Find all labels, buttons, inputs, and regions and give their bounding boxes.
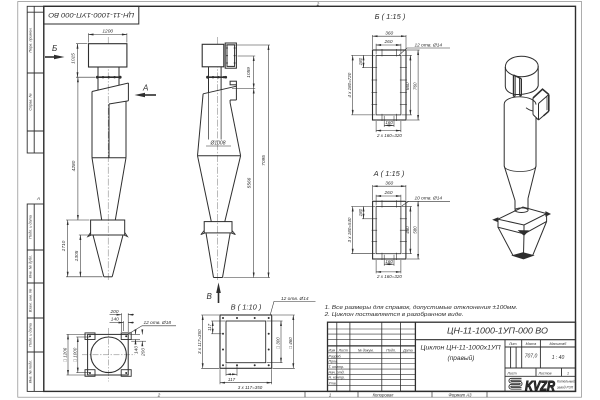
svg-text:117: 117: [207, 323, 212, 331]
svg-text:1059: 1059: [246, 67, 252, 78]
svg-text:Формат А3: Формат А3: [449, 392, 473, 397]
svg-text:1: 1: [567, 372, 569, 376]
svg-text:Масштаб: Масштаб: [550, 342, 568, 346]
svg-text:12 отв. Ø14: 12 отв. Ø14: [281, 296, 309, 302]
svg-text:Листов: Листов: [537, 372, 551, 376]
svg-text:10 отв. Ø14: 10 отв. Ø14: [415, 196, 443, 202]
svg-text:180: 180: [358, 208, 363, 216]
svg-text:140: 140: [134, 346, 140, 354]
svg-text:Лист: Лист: [506, 372, 516, 376]
svg-text:660: 660: [405, 82, 410, 90]
svg-text:Циклон ЦН-11-1000х1УП: Циклон ЦН-11-1000х1УП: [421, 345, 501, 352]
svg-text:Разраб.: Разраб.: [329, 354, 342, 358]
svg-text:Подп.: Подп.: [386, 349, 396, 353]
svg-text:580: 580: [413, 226, 418, 234]
svg-text:1 : 40: 1 : 40: [552, 355, 565, 361]
svg-text:(правый): (правый): [448, 354, 475, 362]
svg-text:160: 160: [385, 120, 393, 125]
svg-text:1. Все размеры для справок, до: 1. Все размеры для справок, допустимые о…: [325, 305, 518, 311]
svg-text:4 x 180=720: 4 x 180=720: [347, 72, 352, 97]
svg-text:260: 260: [383, 39, 392, 45]
svg-text:Пров.: Пров.: [329, 360, 338, 364]
svg-text:KVZR: KVZR: [525, 379, 555, 394]
svg-text:360: 360: [385, 180, 393, 186]
svg-text:А: А: [142, 84, 148, 93]
svg-text:Перв. примен.: Перв. примен.: [29, 27, 33, 52]
svg-text:Взам. инв. №: Взам. инв. №: [29, 289, 33, 312]
svg-text:Лит.: Лит.: [508, 342, 517, 346]
svg-text:Копировал: Копировал: [373, 392, 394, 397]
svg-text:480: 480: [405, 226, 410, 234]
svg-text:4280: 4280: [71, 160, 77, 171]
svg-text:Ø1008: Ø1008: [209, 141, 225, 147]
svg-text:2: 2: [316, 2, 320, 7]
svg-text:1305: 1305: [74, 250, 80, 261]
svg-text:□ 460: □ 460: [288, 337, 293, 349]
svg-text:12 отв. Ø18: 12 отв. Ø18: [144, 320, 172, 326]
svg-text:1710: 1710: [61, 240, 67, 251]
svg-text:Инв. № дубл.: Инв. № дубл.: [29, 255, 33, 278]
svg-text:760: 760: [413, 82, 418, 90]
svg-text:140: 140: [111, 317, 119, 323]
svg-text:№ докум.: № докум.: [358, 349, 374, 353]
svg-text:2 x 160=320: 2 x 160=320: [376, 274, 402, 279]
svg-text:Лист: Лист: [338, 349, 348, 353]
svg-text:1015: 1015: [71, 53, 77, 64]
svg-text:3 x 180=540: 3 x 180=540: [347, 217, 352, 242]
svg-text:А ( 1:15 ): А ( 1:15 ): [373, 169, 405, 178]
svg-text:□ 1000: □ 1000: [72, 347, 77, 361]
svg-text:Н. контр.: Н. контр.: [329, 376, 345, 380]
svg-text:117: 117: [228, 377, 236, 382]
svg-text:Подп. и дата: Подп. и дата: [29, 215, 33, 239]
svg-text:707,0: 707,0: [525, 354, 538, 360]
svg-text:Т. контр.: Т. контр.: [329, 365, 345, 369]
svg-text:260: 260: [383, 190, 392, 196]
svg-text:В ( 1:10 ): В ( 1:10 ): [231, 303, 262, 312]
svg-text:5566: 5566: [247, 177, 253, 188]
svg-text:Нач. отд.: Нач. отд.: [329, 370, 345, 374]
svg-text:3 x 117=350: 3 x 117=350: [197, 329, 202, 354]
svg-text:ЦН-11-1000-1УП-000 ВО: ЦН-11-1000-1УП-000 ВО: [447, 326, 548, 335]
svg-text:Масса: Масса: [526, 342, 537, 346]
svg-text:180: 180: [358, 57, 363, 65]
svg-text:160: 160: [385, 259, 393, 264]
svg-text:2: 2: [157, 392, 161, 397]
svg-text:200: 200: [109, 309, 118, 315]
svg-text:2 x 160=320: 2 x 160=320: [376, 133, 402, 138]
svg-text:Изм: Изм: [328, 349, 335, 353]
svg-text:Утв.: Утв.: [329, 381, 337, 385]
svg-text:Б ( 1:15 ): Б ( 1:15 ): [375, 12, 406, 21]
svg-text:Б: Б: [52, 44, 57, 53]
svg-text:Инв. № подл.: Инв. № подл.: [29, 360, 33, 384]
svg-text:Котельный: Котельный: [557, 380, 575, 384]
svg-text:1200: 1200: [102, 29, 113, 35]
svg-text:В: В: [207, 292, 213, 301]
svg-text:Дата: Дата: [402, 349, 412, 353]
svg-text:Подп. и дата: Подп. и дата: [29, 323, 33, 347]
svg-text:завод РЗП: завод РЗП: [556, 386, 574, 390]
svg-text:□ 1206: □ 1206: [63, 347, 68, 361]
svg-text:А: А: [36, 196, 40, 201]
svg-text:3 x 117=350: 3 x 117=350: [238, 385, 263, 390]
svg-text:360: 360: [385, 30, 393, 36]
svg-text:7095: 7095: [261, 155, 267, 166]
svg-text:Справ. №: Справ. №: [29, 93, 33, 110]
svg-text:□ 300: □ 300: [276, 337, 281, 349]
svg-text:200: 200: [140, 348, 146, 357]
svg-text:ЦН-11-1000-1УП-000 ВО: ЦН-11-1000-1УП-000 ВО: [48, 11, 135, 18]
svg-text:2. Циклон поставляется в разоб: 2. Циклон поставляется в разобранном вид…: [323, 312, 463, 318]
svg-text:1: 1: [329, 392, 331, 397]
svg-text:12 отв. Ø14: 12 отв. Ø14: [415, 42, 443, 48]
